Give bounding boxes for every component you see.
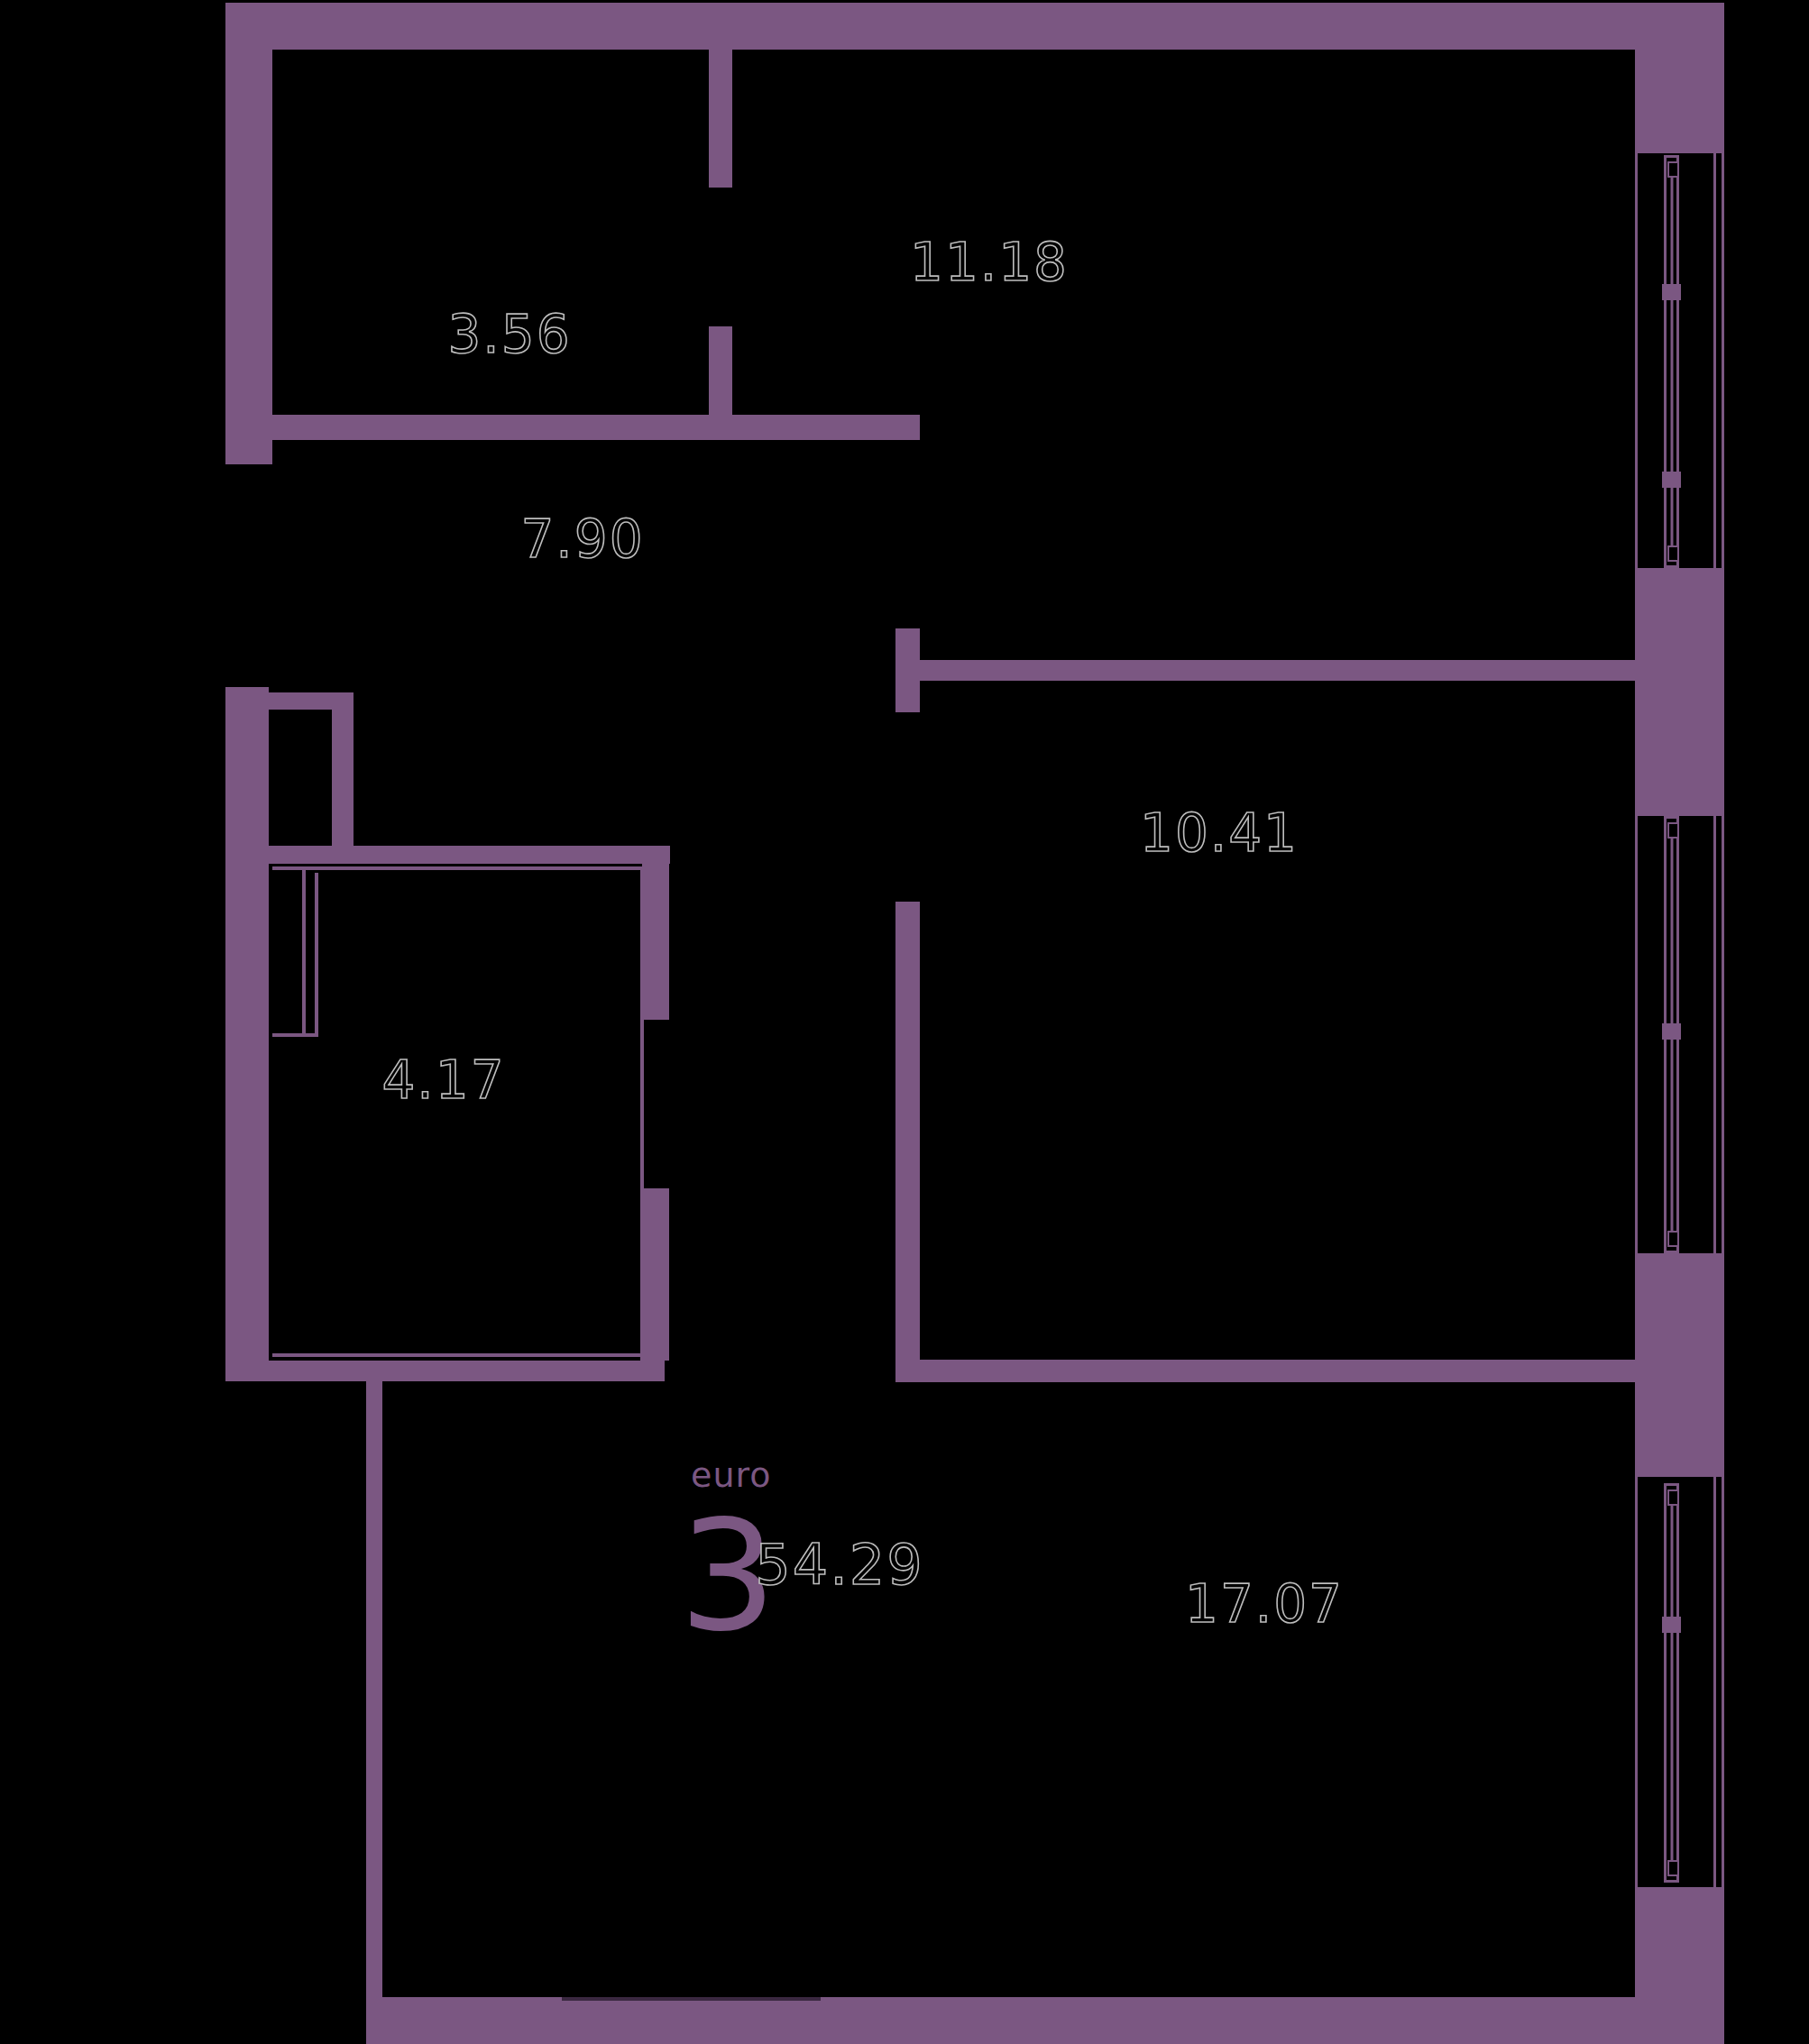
room-area-label-bedroom: 10.41 (1140, 802, 1299, 864)
left-exterior-wall-upper (225, 3, 272, 464)
middle-wall-stub (895, 628, 920, 712)
facade-glazing-line-outer (1722, 153, 1724, 2020)
room-area-label-hall: 7.90 (520, 509, 644, 570)
bedroom-top-wall (920, 660, 1635, 681)
bathroom-lining-top (272, 866, 640, 870)
window-mullion (1662, 284, 1681, 300)
bottom-exterior-wall (366, 1997, 1724, 2044)
top-right-corner-block (1635, 50, 1724, 153)
duct-shaft-opening (269, 710, 332, 848)
bottom-right-corner-block (1635, 1887, 1724, 2044)
window-cap (1667, 822, 1679, 839)
entry-threshold-line (562, 1997, 821, 2001)
window-recess-line-3 (1635, 1477, 1638, 1887)
bathroom-lining-right (640, 866, 644, 1361)
living-room-top-wall-left (225, 1361, 665, 1381)
window-cap (1667, 1231, 1679, 1247)
living-room-top-wall-right (897, 1360, 1724, 1382)
living-room-left-wall (366, 1381, 382, 2020)
window-mullion (1662, 1023, 1681, 1040)
window-cap (1667, 1489, 1679, 1506)
window-cap (1667, 161, 1679, 178)
bathroom-lining-bottom (272, 1353, 644, 1357)
bathroom-niche-line-1 (302, 867, 306, 1035)
floor-plan: 3.56 11.18 7.90 10.41 4.17 17.07 euro 3 … (0, 0, 1809, 2044)
window-mullion (1662, 472, 1681, 488)
room-area-label-storage: 3.56 (447, 304, 571, 365)
window-mullion (1662, 1617, 1681, 1633)
window-top (1664, 155, 1679, 568)
window-sash-line (1670, 163, 1673, 560)
window-bottom (1664, 1483, 1679, 1883)
window-middle (1664, 816, 1679, 1253)
storage-divider-wall-upper (709, 50, 732, 188)
middle-wall-lower (895, 902, 920, 1382)
room-area-label-living-room: 17.07 (1185, 1573, 1344, 1635)
left-exterior-wall-middle (225, 687, 269, 1381)
top-exterior-wall (225, 3, 1724, 50)
bathroom-niche-line-3 (272, 1033, 318, 1037)
window-recess-line-2 (1635, 816, 1638, 1253)
window-recess-line-1 (1635, 153, 1638, 568)
facade-pier-1 (1635, 568, 1724, 816)
bathroom-right-wall-upper (642, 864, 669, 1020)
room-area-label-bathroom: 4.17 (381, 1049, 505, 1111)
unit-total-area: 54.29 (755, 1532, 924, 1598)
bathroom-niche-line-2 (315, 873, 318, 1035)
facade-pier-2 (1635, 1253, 1724, 1477)
bathroom-top-wall (269, 846, 670, 864)
window-sash-line (1670, 1491, 1673, 1874)
storage-divider-wall-lower (709, 326, 732, 440)
window-cap (1667, 545, 1679, 562)
facade-glazing-line-inner (1713, 153, 1716, 2020)
bathroom-right-wall-lower (642, 1188, 669, 1361)
window-cap (1667, 1860, 1679, 1876)
hall-top-wall (269, 415, 920, 440)
room-area-label-kitchen-living: 11.18 (910, 232, 1069, 293)
